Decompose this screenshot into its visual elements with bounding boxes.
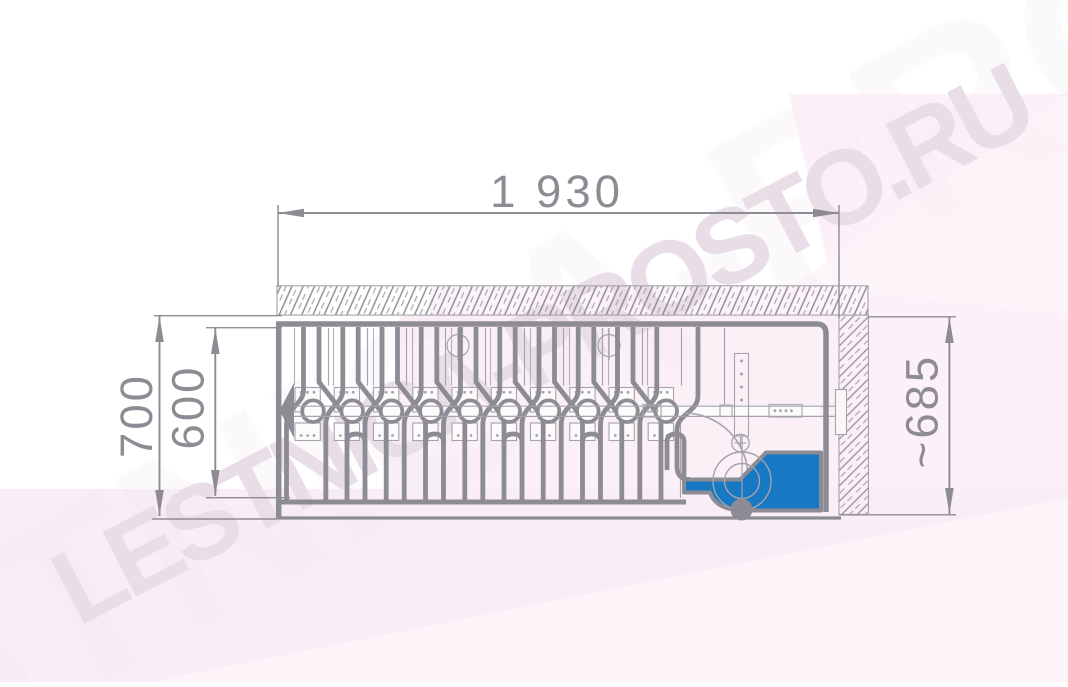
svg-text:~685: ~685 xyxy=(897,354,948,469)
svg-text:1 930: 1 930 xyxy=(490,166,624,217)
svg-text:700: 700 xyxy=(111,373,162,458)
svg-text:600: 600 xyxy=(163,365,214,450)
